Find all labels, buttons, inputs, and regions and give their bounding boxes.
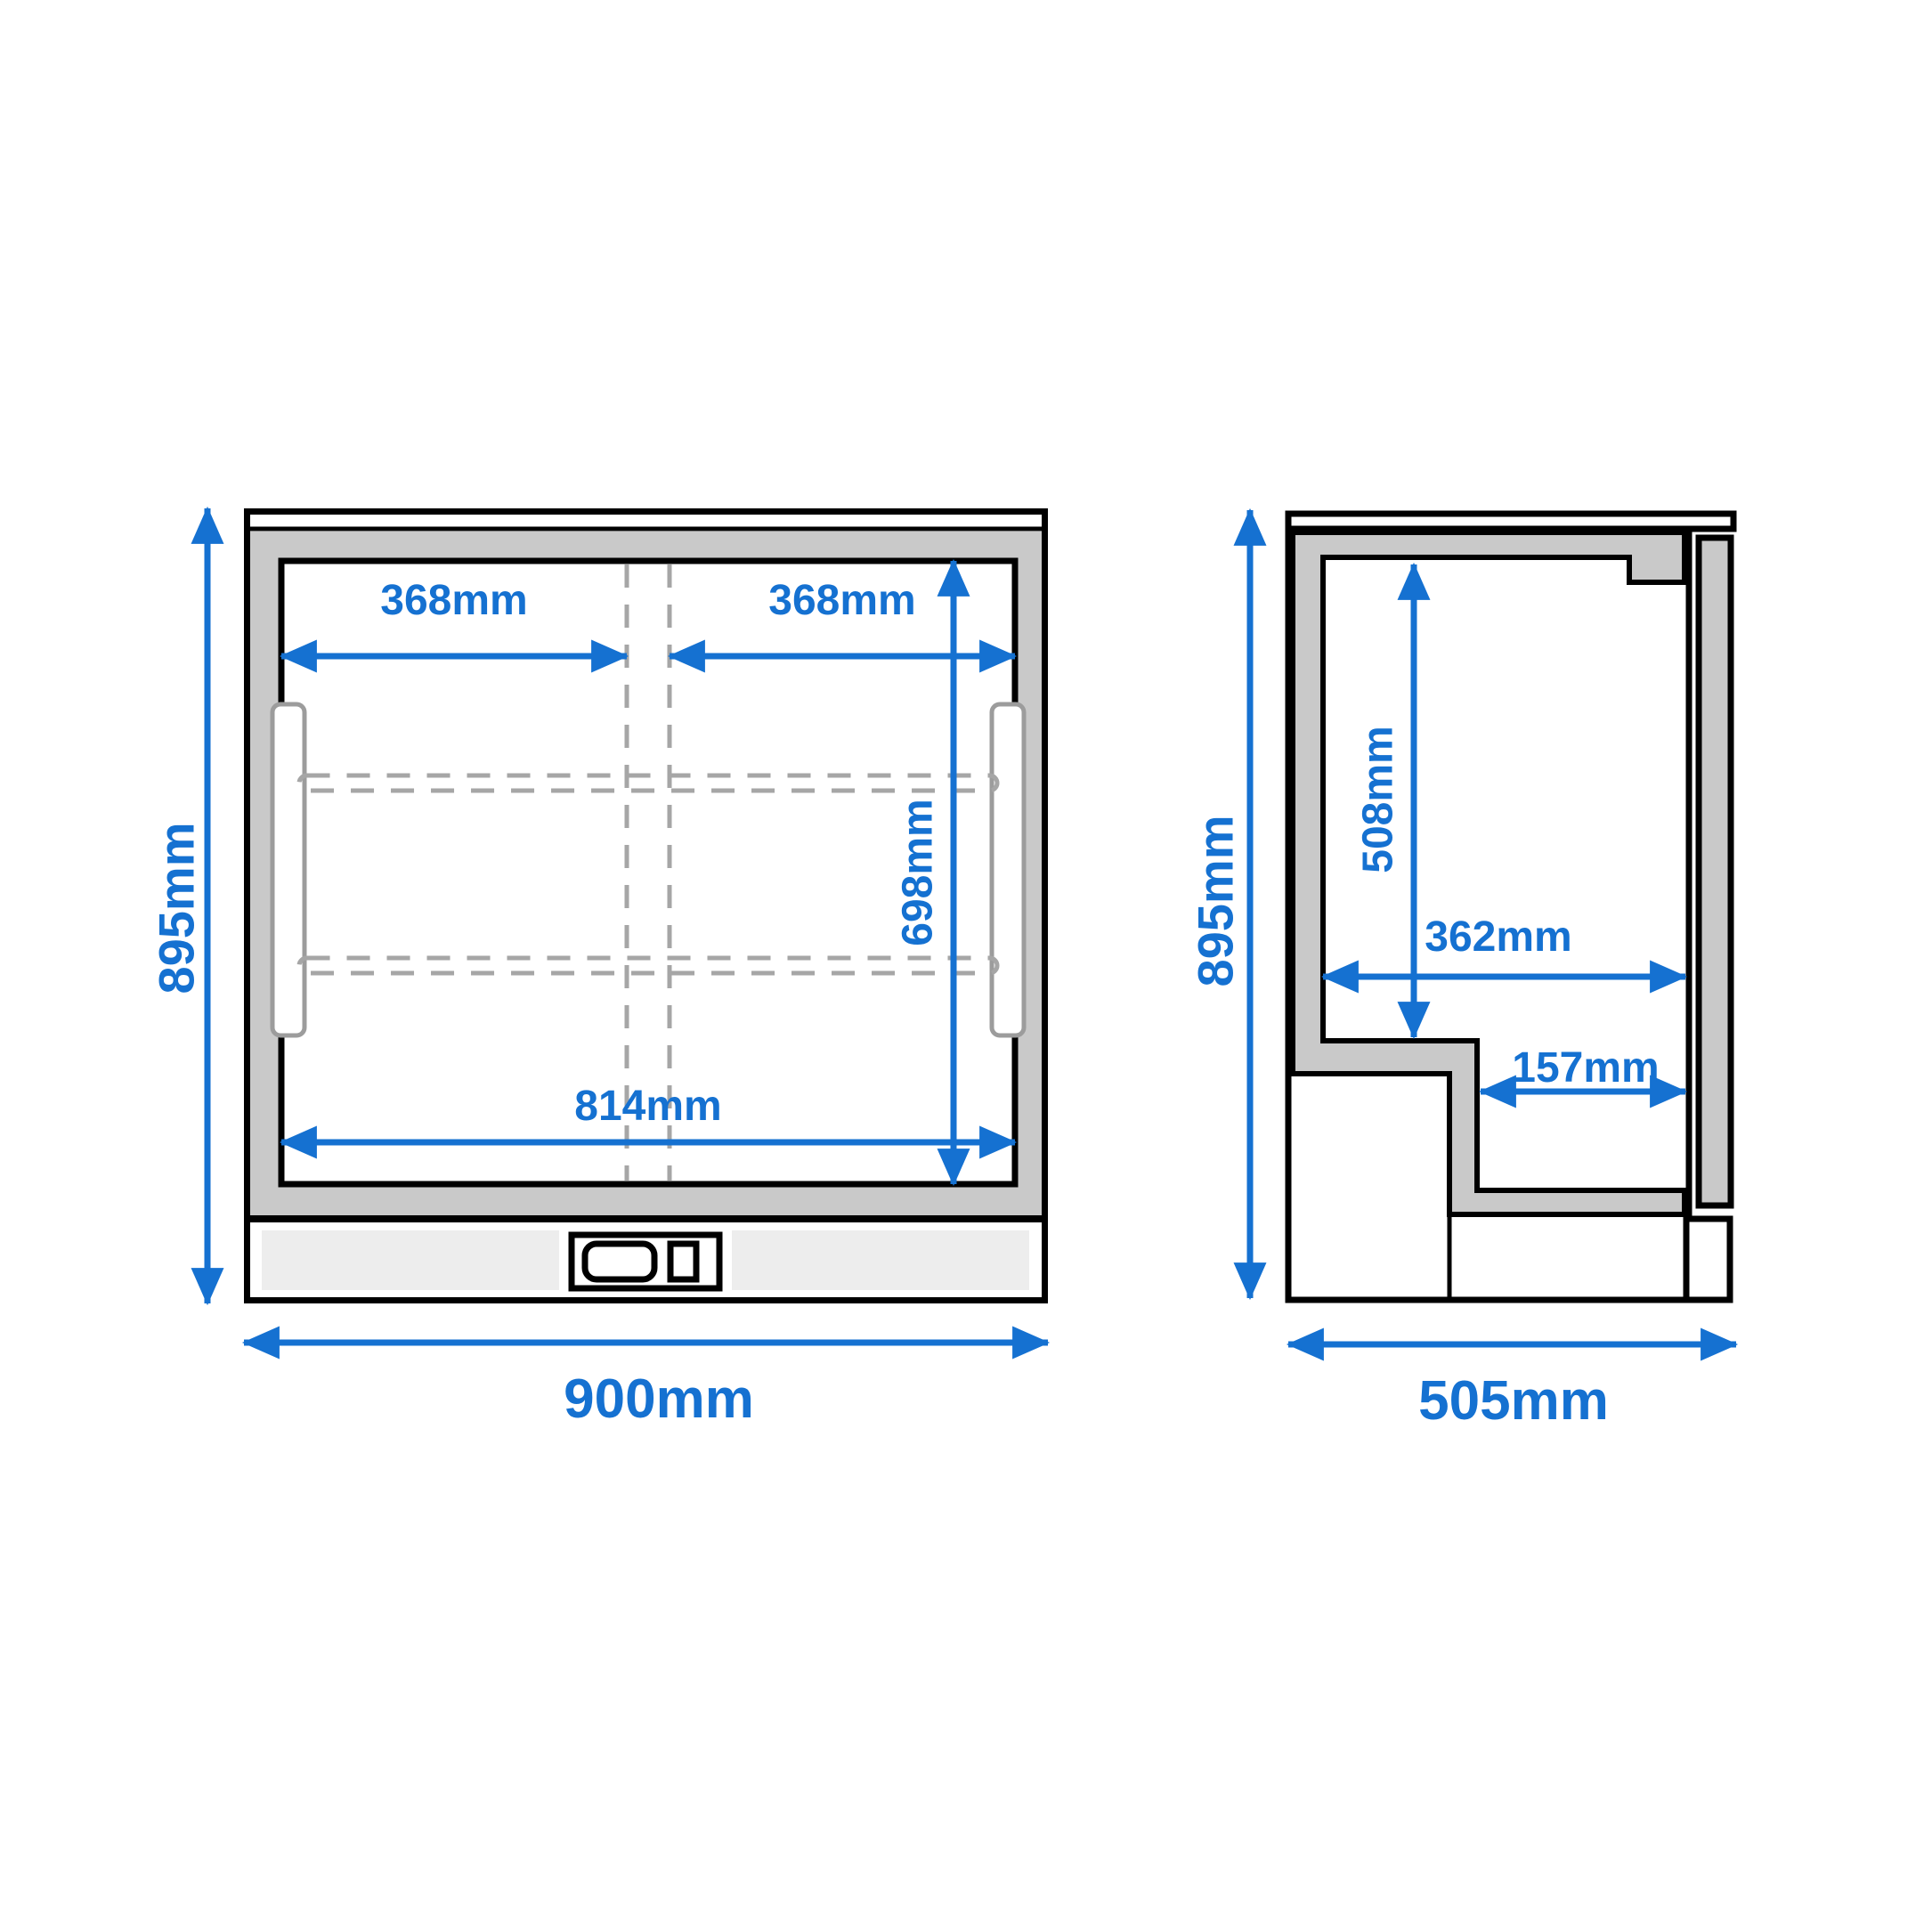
side-lid (1288, 514, 1733, 529)
dimension-diagram: 368mm 368mm 698mm 814mm 895mm 900mm (0, 0, 1932, 1932)
dim-label-front-overall-height: 895mm (149, 822, 205, 994)
dim-label-recess-depth: 157mm (1512, 1044, 1659, 1092)
left-door-rail (272, 704, 304, 1035)
dim-label-side-overall-height: 895mm (1188, 815, 1244, 986)
control-display (585, 1244, 654, 1279)
right-door-rail (992, 704, 1024, 1035)
dim-label-interior-width: 814mm (574, 1083, 721, 1130)
side-view: 895mm 508mm 362mm 157mm 505mm (1188, 510, 1737, 1432)
plinth-vent-left (262, 1230, 559, 1290)
side-body-outline (1288, 514, 1689, 1300)
dim-label-interior-depth: 362mm (1425, 913, 1571, 961)
plinth-vent-right (732, 1230, 1029, 1290)
dim-label-right-door-width: 368mm (768, 577, 915, 624)
dim-label-side-interior-height: 508mm (1355, 726, 1402, 873)
dim-label-left-door-width: 368mm (380, 577, 527, 624)
side-door (1699, 538, 1731, 1205)
dim-label-overall-depth: 505mm (1418, 1370, 1609, 1432)
dim-label-interior-height: 698mm (895, 799, 942, 946)
control-switch (670, 1244, 696, 1279)
front-view: 368mm 368mm 698mm 814mm 895mm 900mm (149, 508, 1049, 1430)
technical-drawing-page: 368mm 368mm 698mm 814mm 895mm 900mm (0, 0, 1932, 1932)
dim-label-overall-width: 900mm (564, 1368, 754, 1430)
side-lower-right-extension (1686, 1219, 1730, 1300)
